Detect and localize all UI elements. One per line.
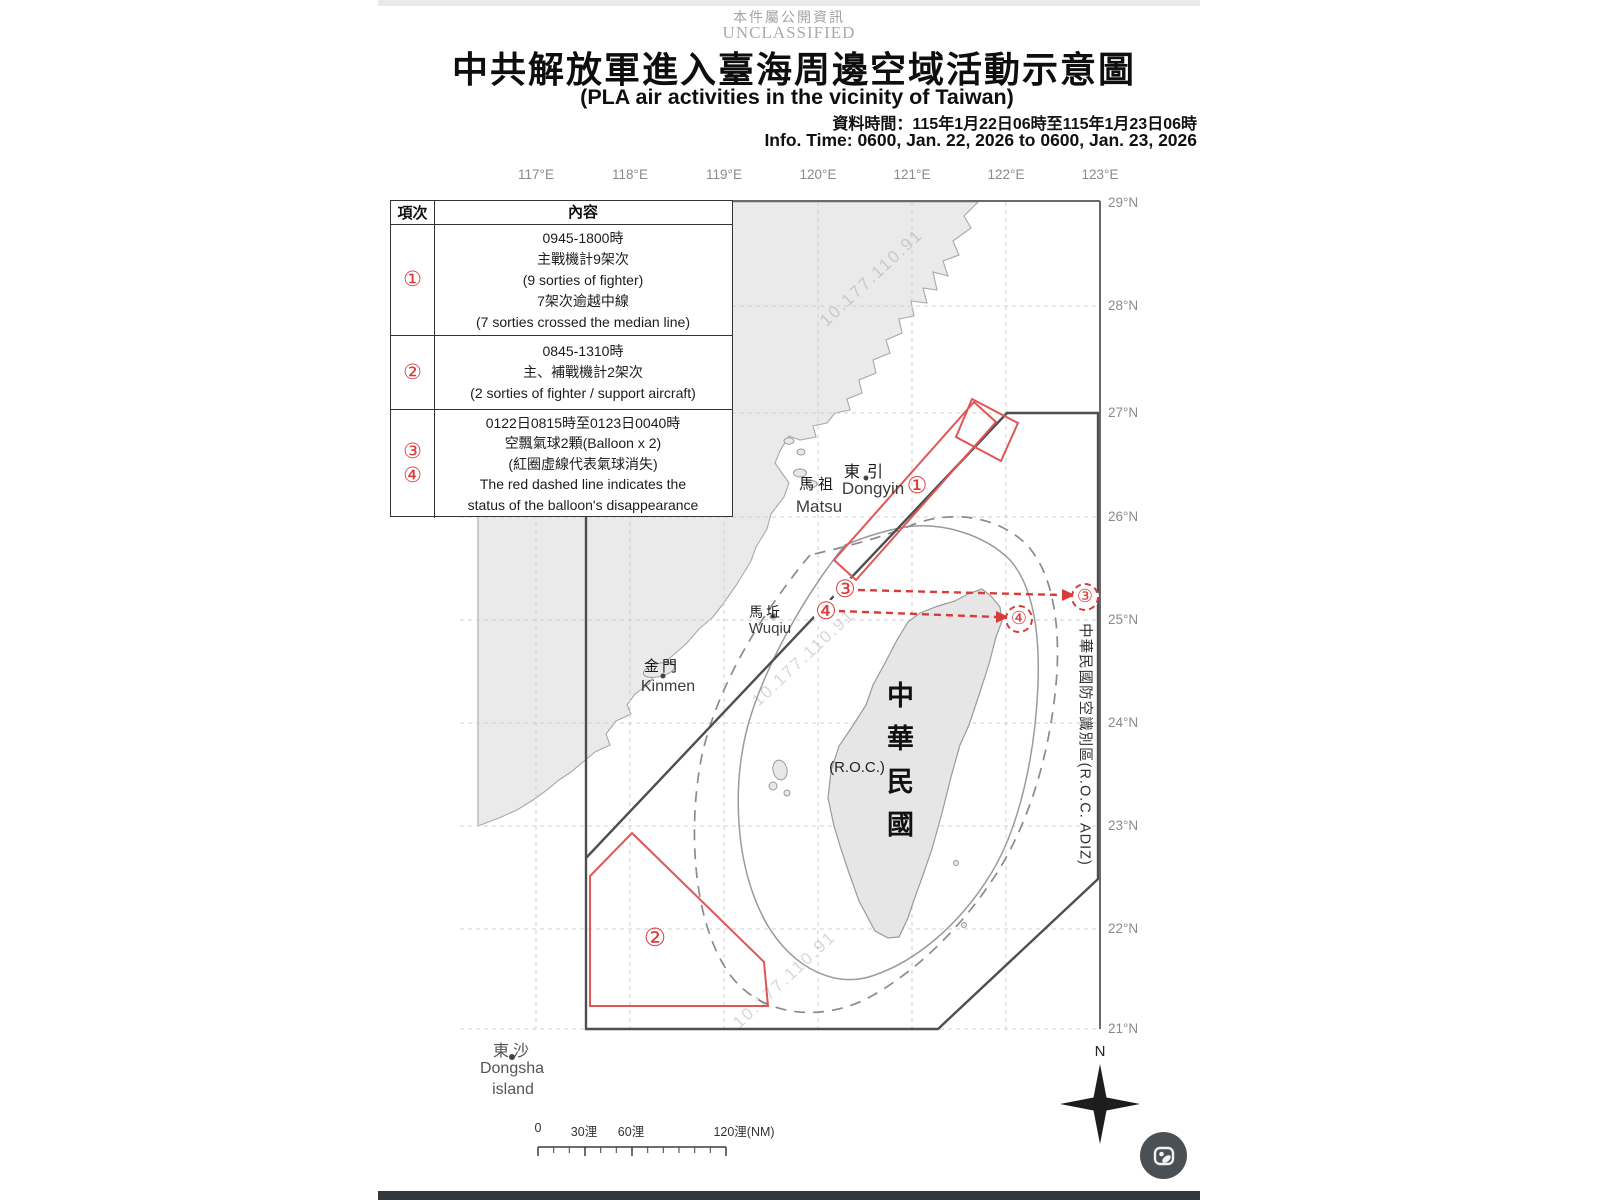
legend-row-3-number-2: ④ <box>403 464 422 488</box>
legend-col-header-content: 內容 <box>568 202 598 223</box>
zone-2-marker: ② <box>641 924 669 952</box>
balloon-4-start-marker: ④ <box>813 599 839 625</box>
compass-rose-icon <box>1060 1064 1140 1144</box>
balloon-4-disappear-marker: ④ <box>1005 605 1033 633</box>
legend-row-1-line: 0945-1800時 <box>543 228 624 249</box>
image-search-icon <box>1151 1143 1177 1169</box>
label-wuqiu-cjk: 馬坵 <box>749 602 783 622</box>
label-wuqiu-en: Wuqiu <box>749 620 791 637</box>
legend-row-2-line: 0845-1310時 <box>543 341 624 362</box>
label-kinmen-en: Kinmen <box>641 678 695 696</box>
legend-row-3-number: ③ <box>403 440 422 464</box>
label-matsu-cjk: 馬祖 <box>799 473 837 494</box>
legend-row-2-line: (2 sorties of fighter / support aircraft… <box>470 383 696 404</box>
legend-col-header-item: 項次 <box>397 202 427 223</box>
label-dongsha-cjk: 東沙 <box>493 1037 533 1061</box>
image-search-button[interactable] <box>1140 1132 1187 1179</box>
legend-row-3-line: The red dashed line indicates the <box>480 474 686 495</box>
legend-table: 項次 內容 ① 0945-1800時 主戰機計9架次 (9 sorties of… <box>390 200 733 517</box>
zone-2-polygon <box>590 833 768 1006</box>
legend-row-3-line: status of the balloon's disappearance <box>468 495 699 516</box>
label-adiz: 中華民國防空識別區(R.O.C. ADIZ) <box>1076 605 1097 885</box>
compass-north-label: N <box>1095 1043 1106 1060</box>
legend-row-3: ③ ④ 0122日0815時至0123日0040時 空飄氣球2顆(Balloon… <box>391 409 732 518</box>
legend-row-2-number: ② <box>403 361 422 385</box>
balloon-3-disappear-marker: ③ <box>1071 583 1099 611</box>
scale-label-30: 30浬 <box>571 1121 597 1140</box>
scale-label-60: 60浬 <box>618 1121 644 1140</box>
scale-label-0: 0 <box>535 1121 542 1135</box>
scale-bar <box>538 1147 726 1156</box>
legend-row-3-line: (紅圈虛線代表氣球消失) <box>508 454 657 475</box>
legend-row-2-line: 主、補戰機計2架次 <box>523 362 643 383</box>
legend-row-3-line: 0122日0815時至0123日0040時 <box>486 413 681 434</box>
legend-row-1-line: (7 sorties crossed the median line) <box>476 312 690 333</box>
legend-row-3-line: 空飄氣球2顆(Balloon x 2) <box>505 433 661 454</box>
label-taiwan-roc-en: (R.O.C.) <box>829 759 885 776</box>
label-kinmen-cjk: 金門 <box>644 655 680 676</box>
scale-label-120: 120浬(NM) <box>713 1121 774 1140</box>
legend-row-1-number: ① <box>403 268 422 292</box>
label-dongsha-en-2: island <box>492 1081 534 1099</box>
legend-row-1-line: (9 sorties of fighter) <box>523 270 644 291</box>
label-matsu-en: Matsu <box>796 497 842 517</box>
zone-1-marker: ① <box>904 472 930 498</box>
legend-row-1: ① 0945-1800時 主戰機計9架次 (9 sorties of fight… <box>391 224 732 335</box>
legend-row-2: ② 0845-1310時 主、補戰機計2架次 (2 sorties of fig… <box>391 335 732 409</box>
label-dongsha-en-1: Dongsha <box>480 1060 544 1078</box>
page: 本件屬公開資訊 UNCLASSIFIED 中共解放軍進入臺海周邊空域活動示意圖 … <box>0 0 1600 1200</box>
legend-row-1-line: 7架次逾越中線 <box>537 291 629 312</box>
legend-row-1-line: 主戰機計9架次 <box>537 249 629 270</box>
label-dongyin-en: Dongyin <box>842 479 904 499</box>
legend-header-row: 項次 內容 <box>391 201 732 224</box>
